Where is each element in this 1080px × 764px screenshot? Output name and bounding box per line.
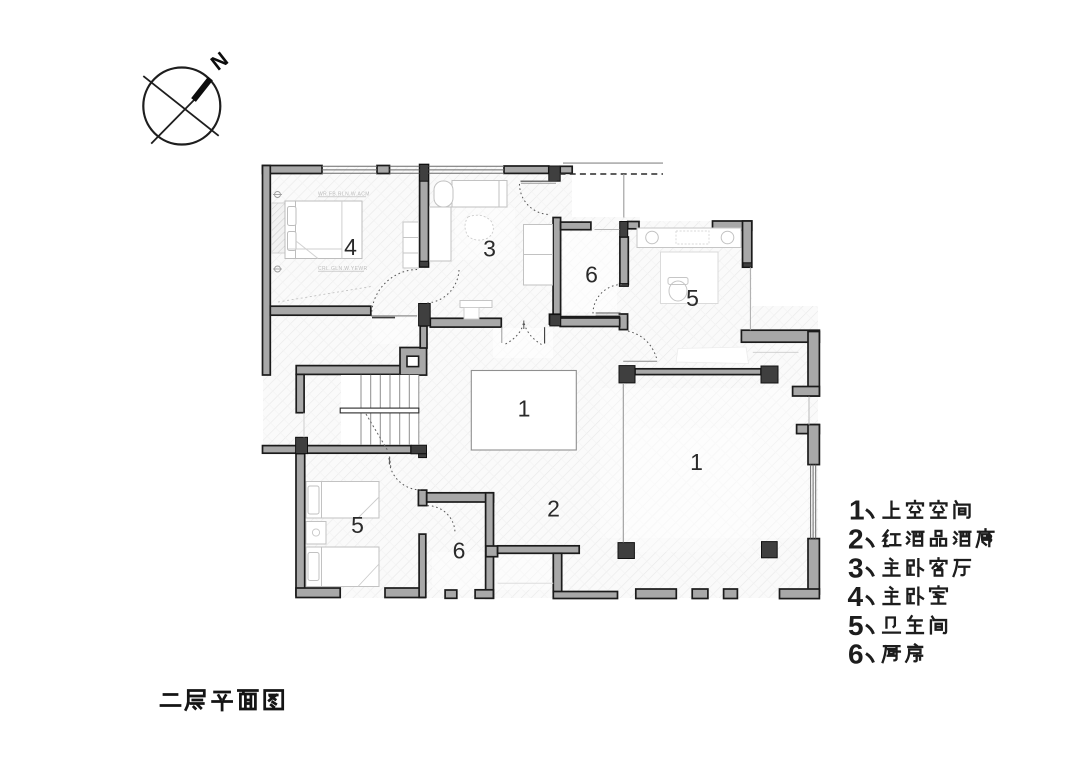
svg-text:2: 2 bbox=[547, 496, 560, 522]
svg-text:5: 5 bbox=[686, 285, 699, 311]
svg-text:N: N bbox=[207, 48, 233, 75]
svg-text:5: 5 bbox=[351, 512, 364, 538]
svg-text:6: 6 bbox=[453, 538, 466, 564]
svg-text:4: 4 bbox=[848, 581, 864, 612]
svg-text:2: 2 bbox=[848, 523, 864, 554]
svg-text:5: 5 bbox=[848, 610, 864, 641]
svg-text:1: 1 bbox=[849, 495, 865, 526]
svg-text:3: 3 bbox=[483, 236, 496, 262]
svg-text:6: 6 bbox=[585, 262, 598, 288]
svg-text:6: 6 bbox=[848, 639, 864, 670]
svg-text:1: 1 bbox=[518, 396, 531, 422]
svg-text:4: 4 bbox=[344, 234, 357, 260]
svg-text:1: 1 bbox=[690, 449, 703, 475]
svg-text:3: 3 bbox=[848, 553, 864, 584]
